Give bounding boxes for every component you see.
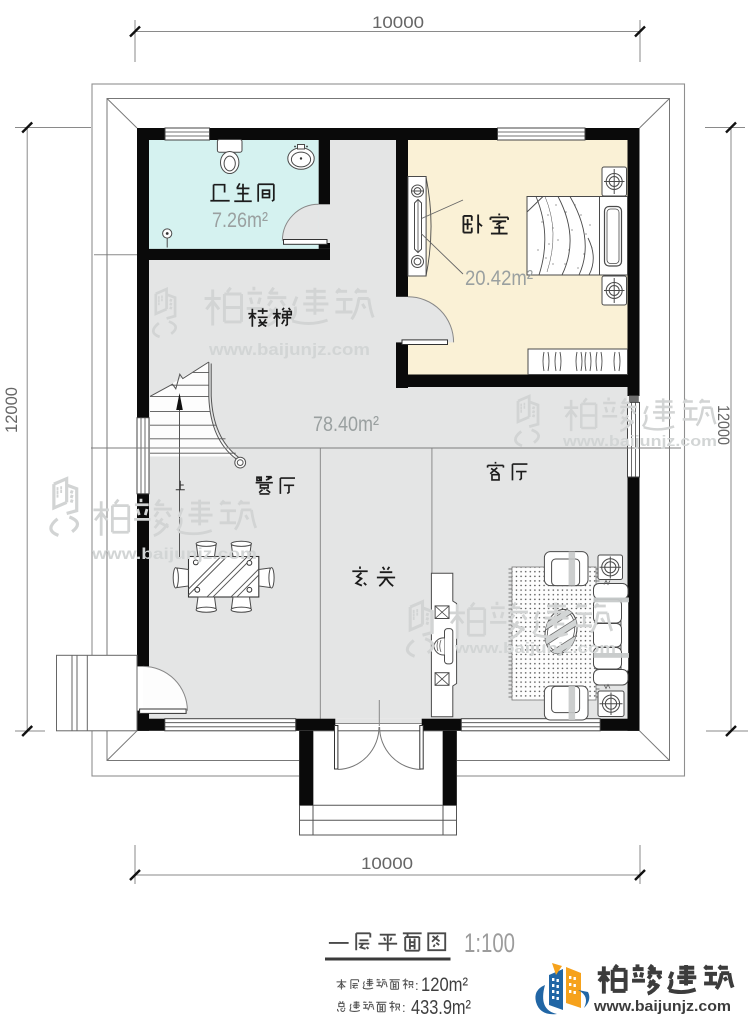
svg-text:10000: 10000 [361, 854, 413, 873]
svg-text:7.26m²: 7.26m² [212, 209, 268, 232]
svg-text::: : [402, 1000, 406, 1015]
svg-text:12000: 12000 [2, 387, 21, 433]
svg-text::: : [415, 978, 419, 993]
svg-text:78.40m²: 78.40m² [313, 413, 379, 436]
svg-text:120m²: 120m² [421, 975, 468, 996]
svg-text:www.baijunjz.com: www.baijunjz.com [91, 546, 257, 563]
svg-text:www.baijunjz.com: www.baijunjz.com [562, 433, 717, 450]
svg-text:www.baijunjz.com: www.baijunjz.com [208, 340, 370, 359]
svg-text:10000: 10000 [372, 13, 424, 32]
svg-text:433.9m²: 433.9m² [411, 997, 471, 1019]
svg-text:1:100: 1:100 [464, 928, 515, 958]
svg-text:www.baijunjz.com: www.baijunjz.com [454, 640, 616, 657]
svg-text:20.42m²: 20.42m² [465, 267, 533, 290]
svg-text:www.baijunjz.com: www.baijunjz.com [593, 999, 731, 1015]
